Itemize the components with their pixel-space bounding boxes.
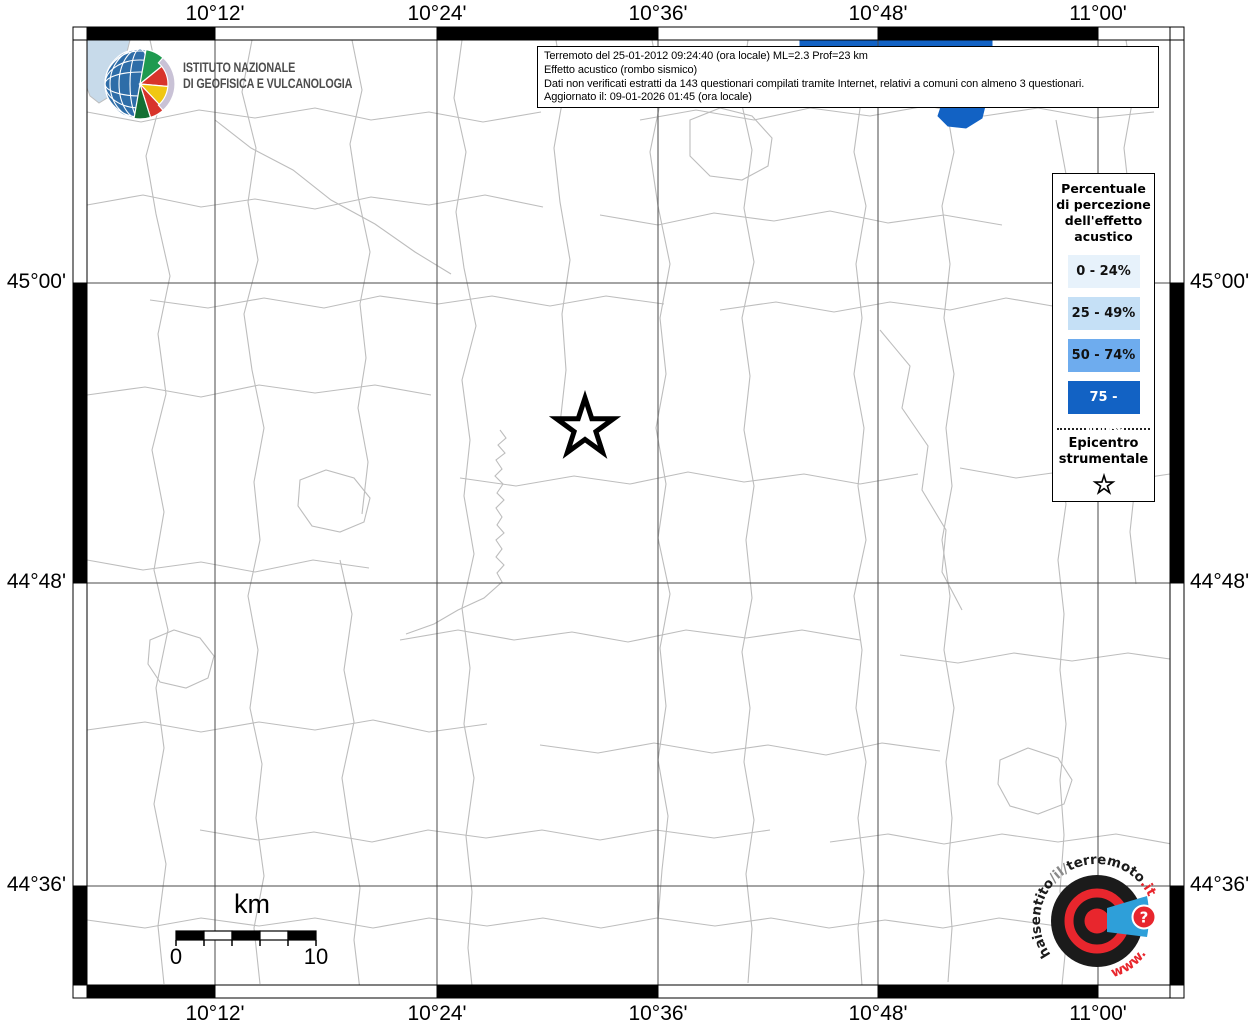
frame-band-segment	[1098, 985, 1170, 998]
frame-band-segment	[215, 27, 437, 40]
scalebar-segment	[260, 931, 288, 940]
frame-band-segment	[73, 27, 87, 40]
municipality-boundary	[406, 430, 506, 634]
map-frame	[73, 27, 1184, 998]
haisentito-logo: ? haisentito/il/terremoto.it www.	[1028, 852, 1160, 981]
municipality-boundary	[87, 385, 431, 397]
legend-title-line: dell'effetto	[1053, 213, 1154, 229]
scalebar-start-label: 0	[156, 944, 196, 970]
municipality-boundary	[540, 743, 940, 755]
legend-epicenter-line: strumentale	[1053, 452, 1154, 468]
scalebar-unit-label: km	[222, 889, 282, 920]
info-line: Dati non verificati estratti da 143 ques…	[544, 78, 1152, 92]
legend-class-swatch: 50 - 74%	[1068, 339, 1140, 372]
map-content	[87, 40, 1172, 990]
lon-label-top: 10°24'	[407, 2, 466, 26]
frame-band-segment	[73, 985, 87, 998]
hsit-center-dot	[1085, 909, 1110, 934]
lon-label-bottom: 10°24'	[407, 1002, 466, 1024]
lon-label-bottom: 10°48'	[848, 1002, 907, 1024]
frame-band-segment	[1170, 583, 1184, 886]
map-canvas: ? haisentito/il/terremoto.it www.	[0, 0, 1256, 1024]
frame-band-segment	[658, 985, 878, 998]
frame-band-segment	[73, 886, 87, 985]
scalebar-segment	[232, 931, 260, 940]
frame-band-segment	[878, 985, 1098, 998]
scale-bar	[176, 931, 316, 946]
frame-band-segment	[1170, 886, 1184, 985]
info-line: Aggiornato il: 09-01-2026 01:45 (ora loc…	[544, 91, 1152, 105]
epicenter-star-marker	[557, 398, 614, 452]
lat-label-right: 44°36'	[1190, 873, 1249, 897]
municipality-boundary	[942, 40, 954, 982]
epicenter-star-icon	[1092, 472, 1116, 496]
municipality-boundary	[215, 120, 451, 274]
legend-epicenter-label: Epicentro strumentale	[1053, 436, 1154, 468]
municipality-boundary	[900, 653, 1170, 663]
lon-label-bottom: 10°36'	[628, 1002, 687, 1024]
municipality-boundary	[460, 472, 918, 486]
epicenter-star	[557, 398, 614, 452]
legend-class-swatch: 25 - 49%	[1068, 297, 1140, 330]
municipality-boundary	[148, 630, 214, 688]
ingv-globe-logo	[105, 49, 175, 119]
scalebar-end-label: 10	[296, 944, 336, 970]
scalebar-segment	[288, 931, 316, 940]
lon-label-bottom: 10°12'	[185, 1002, 244, 1024]
municipality-boundary	[87, 560, 369, 572]
frame-band-segment	[73, 583, 87, 886]
frame-band-segment	[73, 283, 87, 583]
municipality-boundary	[400, 630, 860, 642]
scalebar-segment	[204, 931, 232, 940]
lat-label-right: 45°00'	[1190, 270, 1249, 294]
scalebar-segment	[176, 931, 204, 940]
legend-epicenter-line: Epicentro	[1053, 436, 1154, 452]
municipality-boundary	[852, 40, 866, 986]
frame-band-segment	[1170, 27, 1184, 40]
legend-title: Percentuale di percezione dell'effetto a…	[1053, 181, 1154, 245]
lon-label-top: 11°00'	[1069, 2, 1127, 26]
frame-band-segment	[87, 27, 215, 40]
frame-band-segment	[1170, 40, 1184, 283]
earthquake-info-box: Terremoto del 25-01-2012 09:24:40 (ora l…	[537, 46, 1159, 108]
municipality-boundary	[640, 106, 1154, 120]
municipality-boundary	[87, 195, 543, 209]
legend-box: Percentuale di percezione dell'effetto a…	[1052, 173, 1155, 502]
lat-label-right: 44°48'	[1190, 570, 1249, 594]
map-screenshot: ? haisentito/il/terremoto.it www. Terrem…	[0, 0, 1256, 1024]
info-line: Terremoto del 25-01-2012 09:24:40 (ora l…	[544, 50, 1152, 64]
legend-title-line: acustico	[1053, 229, 1154, 245]
legend-class-swatch: 75 - 100%	[1068, 381, 1140, 414]
lat-label-left: 44°36'	[0, 873, 66, 897]
legend-class-swatch: 0 - 24%	[1068, 255, 1140, 288]
municipality-boundary	[200, 830, 770, 842]
legend-title-line: di percezione	[1053, 197, 1154, 213]
municipality-boundary	[650, 40, 670, 920]
lon-label-bottom: 11°00'	[1069, 1002, 1127, 1024]
municipality-boundary	[350, 40, 370, 514]
municipality-boundary	[146, 40, 170, 984]
frame-band-segment	[73, 40, 87, 283]
frame-band-segment	[878, 27, 1098, 40]
lat-label-left: 45°00'	[0, 270, 66, 294]
lat-label-left: 44°48'	[0, 570, 66, 594]
municipality-boundary	[454, 40, 476, 986]
lon-label-top: 10°36'	[628, 2, 687, 26]
legend-classes: 0 - 24%25 - 49%50 - 74%75 - 100%	[1053, 255, 1154, 414]
frame-band-segment	[1098, 27, 1170, 40]
municipality-boundary	[998, 748, 1072, 814]
frame-band-segment	[215, 985, 437, 998]
municipality-boundary	[880, 330, 962, 610]
frame-band-segment	[437, 27, 658, 40]
municipality-boundary	[150, 296, 664, 308]
frame-band-segment	[658, 27, 878, 40]
municipality-boundary	[830, 834, 1172, 844]
municipality-boundary	[298, 470, 370, 532]
hsit-question-mark: ?	[1140, 909, 1149, 927]
ingv-name-line2: DI GEOFISICA E VULCANOLOGIA	[183, 76, 352, 92]
lon-label-top: 10°12'	[185, 2, 244, 26]
frame-band-segment	[1170, 283, 1184, 583]
municipality-boundary	[740, 40, 754, 983]
frame-band-segment	[1170, 985, 1184, 998]
ingv-wordmark: ISTITUTO NAZIONALE DI GEOFISICA E VULCAN…	[183, 60, 352, 91]
info-line: Effetto acustico (rombo sismico)	[544, 64, 1152, 78]
municipality-boundary	[87, 720, 487, 732]
municipality-boundary	[242, 40, 264, 984]
ingv-name-line1: ISTITUTO NAZIONALE	[183, 60, 352, 76]
frame-band-segment	[437, 985, 658, 998]
frame-band-segment	[87, 985, 215, 998]
legend-title-line: Percentuale	[1053, 181, 1154, 197]
lon-label-top: 10°48'	[848, 2, 907, 26]
